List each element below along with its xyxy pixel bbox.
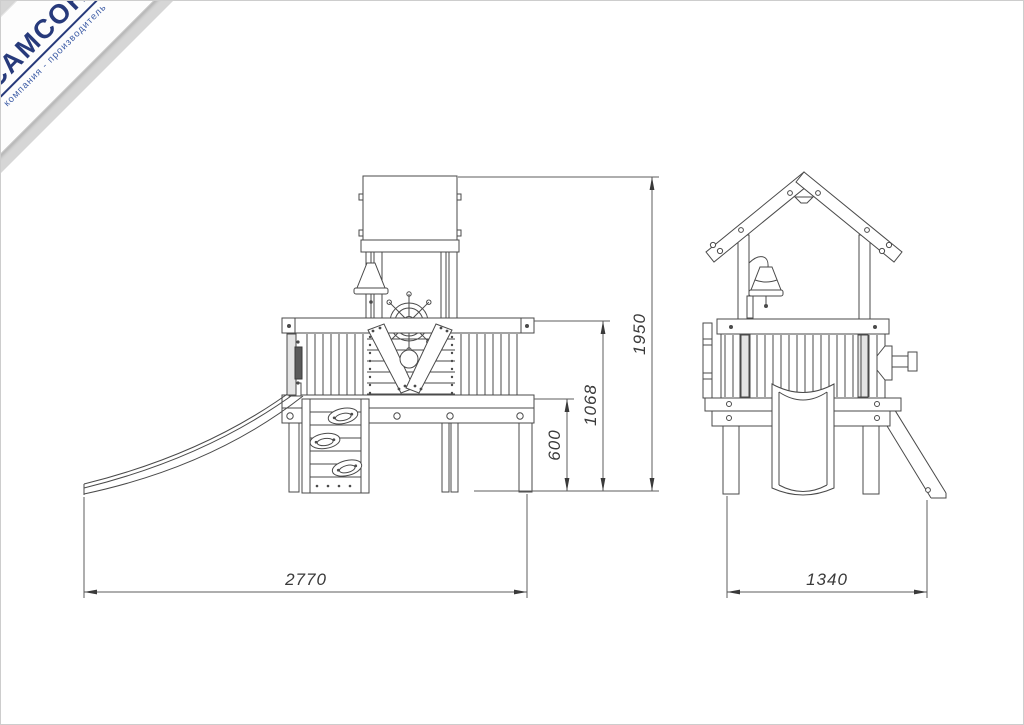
porthole (400, 350, 418, 368)
drawing-sheet: 2770 1950 1068 600 (0, 0, 1024, 725)
telescope (877, 346, 917, 380)
dim-label-2770: 2770 (284, 570, 327, 589)
front-elevation-view (703, 172, 946, 498)
dimension-width-front: 1340 (727, 496, 927, 598)
dim-label-1340: 1340 (806, 570, 848, 589)
side-elevation-view (84, 176, 534, 495)
bell-side (354, 256, 388, 304)
slide-front (772, 384, 834, 495)
dimension-height-railing: 1068 (534, 321, 610, 491)
dimension-height-deck: 600 (534, 399, 574, 491)
dim-label-600: 600 (545, 429, 564, 460)
dimension-width-side: 2770 (84, 494, 527, 598)
canopy (359, 176, 461, 252)
slide-side (84, 383, 303, 495)
dim-label-1950: 1950 (630, 313, 649, 355)
gable-roof (706, 172, 902, 262)
front-top-rail (717, 319, 889, 334)
front-railing (721, 334, 885, 398)
climbing-wall (302, 399, 369, 493)
bell-front (747, 257, 783, 318)
dim-label-1068: 1068 (581, 384, 600, 426)
dimensions: 2770 1950 1068 600 (84, 177, 927, 598)
edge-board (703, 323, 712, 398)
railing-top-rail (282, 318, 534, 333)
technical-drawing: 2770 1950 1068 600 (1, 1, 1023, 724)
